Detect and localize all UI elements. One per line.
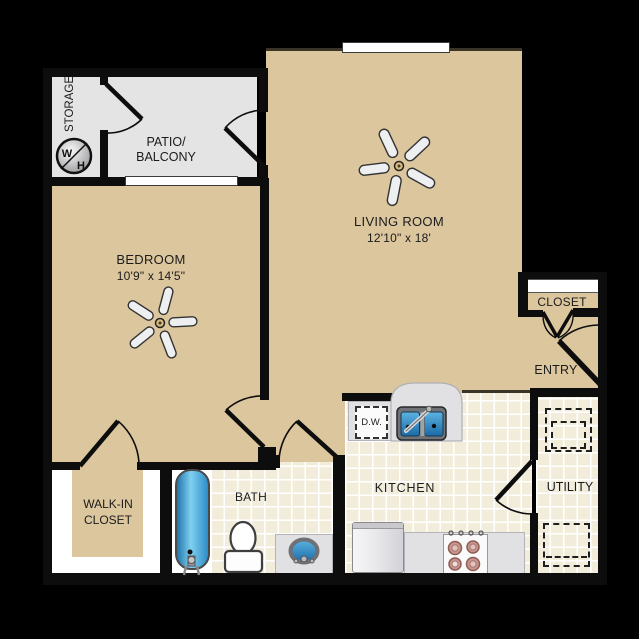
closet-label: CLOSET [524,295,600,309]
patio-label: PATIO/ BALCONY [118,135,214,165]
bedroom-label: BEDROOM [91,252,211,267]
walkin-label: WALK-IN CLOSET [58,496,158,528]
washer-heater-symbol: W H [57,139,91,173]
bath-door-arc [279,421,297,460]
utility-door-leaf [496,461,532,500]
walkin-label-line2: CLOSET [58,512,158,528]
bedroom-door-leaf [226,410,264,447]
living-dimensions: 12'10" x 18' [338,231,460,245]
bath-label: BATH [221,490,281,504]
stove-burners [449,531,484,571]
patio-label-line2: BALCONY [118,150,214,165]
storage-door-arc [106,119,142,133]
walkin-door-arc [118,421,139,463]
kitchen-label: KITCHEN [365,481,445,495]
living-ceiling-fan [359,128,437,207]
entry-label: ENTRY [518,363,594,377]
living-label: LIVING ROOM [338,214,460,229]
storage-label: STORAGE [64,69,78,139]
kitchen-sink [397,406,446,440]
fixtures-overlay: W H [0,0,639,639]
bathtub [176,470,209,575]
bedroom-door-arc [226,396,264,410]
patio-door-arc [225,110,263,128]
utility-door-arc [496,500,532,514]
walkin-label-line1: WALK-IN [58,496,158,512]
patio-door-leaf [225,128,263,165]
toilet [225,522,262,572]
patio-label-line1: PATIO/ [118,135,214,150]
bedroom-ceiling-fan [127,286,198,359]
heater-letter: H [77,160,85,172]
bath-door-leaf [297,421,340,460]
washer-letter: W [62,148,73,160]
bath-sink [291,540,318,564]
floor-plan: D.W. [0,0,639,639]
walkin-door-leaf [80,421,118,466]
utility-label: UTILITY [538,480,602,494]
bedroom-dimensions: 10'9" x 14'5" [91,269,211,283]
storage-door-leaf [106,84,142,119]
